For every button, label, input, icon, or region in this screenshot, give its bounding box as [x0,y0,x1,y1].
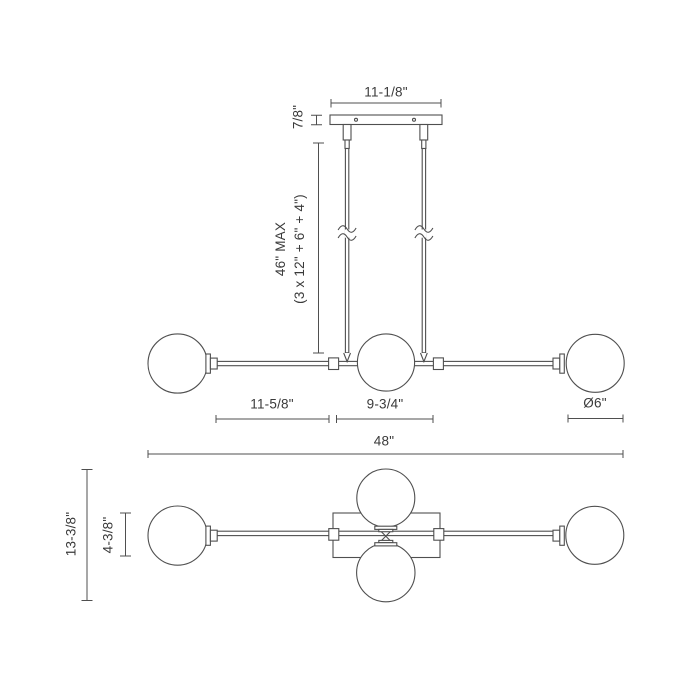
dim-canopy-width-label: 11-1/8" [364,85,407,100]
dim-bracket-canopy-height [311,115,322,125]
rod-tip-left [344,353,351,362]
rod-socket-left [343,125,351,141]
globe-fitter-right-plan [553,526,564,545]
rod-socket-right [420,125,428,141]
globe-right-plan [566,506,624,564]
dim-line-left-arm [216,415,329,423]
dim-line-canopy-depth [120,513,131,556]
rod-collar-left [345,140,349,149]
dim-line-max-drop [313,143,324,353]
canopy-screw-right [413,118,416,121]
dim-globe-diameter-label: Ø6" [583,396,606,411]
line-drawing [0,0,700,700]
globe-left-plan [148,506,207,565]
globe-fitter-left-plan [206,526,217,545]
arm-connector-right [433,358,443,370]
globe-right-side [566,334,624,392]
dim-left-arm-label: 11-5/8" [250,397,293,412]
arm-connector-left-plan [329,529,339,541]
globe-front-plan [357,543,415,601]
globe-fitter-right-side [553,354,564,373]
canopy-screw-left [355,118,358,121]
arm-connector-left [329,358,339,370]
hang-rod-left [345,149,348,353]
dim-overall-width-label: 48" [374,434,394,449]
dim-line-overall-depth [82,470,93,601]
dim-canopy-depth-label: 4-3/8" [101,517,116,554]
globe-center-side [357,334,414,391]
dim-line-center-span [337,415,434,423]
dim-overall-depth-label: 13-3/8" [64,512,79,556]
dim-canopy-height-label: 7/8" [291,105,306,129]
hang-rod-right [422,149,425,353]
dim-max-drop-line1: 46" MAX [271,194,290,304]
fixture-dimension-diagram: 11-1/8" 7/8" 46" MAX (3 x 12" + 6" + 4")… [0,0,700,700]
globe-left-side [148,334,207,393]
dim-line-overall-width [148,450,623,458]
bottom-view-fixture [148,469,624,602]
dim-max-drop-line2: (3 x 12" + 6" + 4") [290,194,309,304]
rod-collar-right [422,140,426,149]
canopy-side [330,115,442,125]
rod-tip-right [421,353,428,362]
globe-fitter-left-side [206,354,217,373]
dim-max-drop-label: 46" MAX (3 x 12" + 6" + 4") [271,194,309,304]
dim-line-globe-diameter [568,415,623,423]
dim-line-canopy-width [331,99,441,108]
dim-center-span-label: 9-3/4" [367,397,404,412]
side-view-fixture [148,115,624,393]
globe-back-plan [357,469,415,527]
arm-connector-right-plan [434,529,444,541]
